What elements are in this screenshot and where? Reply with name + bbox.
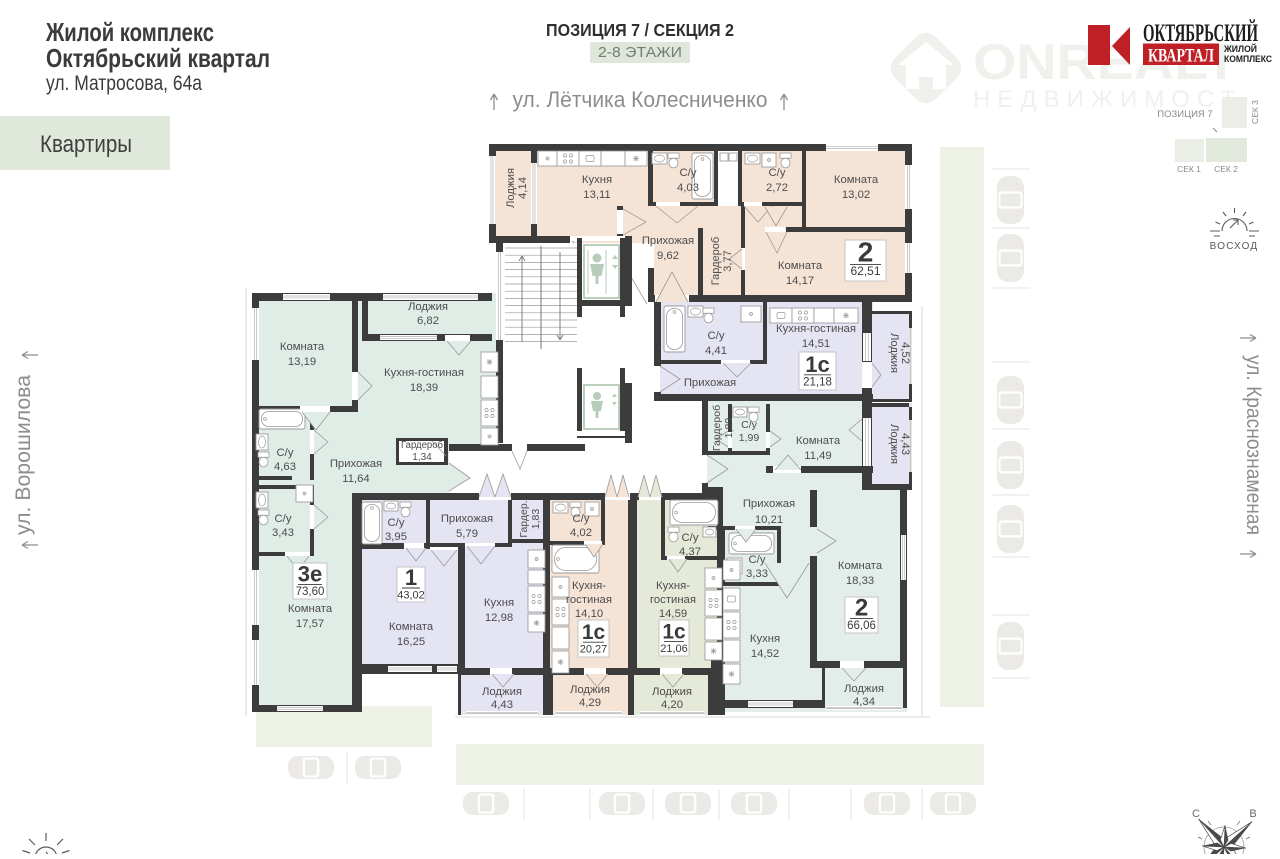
svg-text:ул. Ворошилова: ул. Ворошилова [11, 375, 35, 535]
svg-text:Прихожая: Прихожая [684, 377, 736, 389]
svg-text:Гардероб: Гардероб [401, 439, 443, 451]
svg-text:С/у: С/у [573, 513, 590, 525]
svg-text:3,77: 3,77 [722, 250, 734, 271]
svg-text:2: 2 [858, 236, 874, 267]
svg-text:Кухня-: Кухня- [656, 580, 690, 592]
svg-text:КВАРТАЛ: КВАРТАЛ [1148, 46, 1214, 67]
svg-text:4,29: 4,29 [579, 697, 601, 709]
svg-text:Гардероб: Гардероб [710, 237, 722, 285]
svg-text:С/у: С/у [741, 419, 758, 431]
svg-text:С/у: С/у [275, 513, 292, 525]
svg-text:Комната: Комната [778, 260, 823, 272]
svg-text:5,79: 5,79 [456, 528, 478, 540]
svg-text:43,02: 43,02 [397, 590, 425, 602]
svg-text:1,80: 1,80 [723, 418, 735, 439]
svg-text:4,37: 4,37 [679, 546, 701, 558]
svg-text:ул. Краснознаменая: ул. Краснознаменая [1242, 355, 1266, 535]
svg-text:Октябрьский квартал: Октябрьский квартал [46, 43, 270, 73]
svg-text:4,43: 4,43 [491, 699, 513, 711]
svg-text:3,33: 3,33 [746, 568, 768, 580]
svg-text:СЕК 1: СЕК 1 [1177, 164, 1201, 174]
svg-text:13,19: 13,19 [288, 356, 316, 368]
svg-text:Квартиры: Квартиры [40, 131, 132, 158]
svg-text:Комната: Комната [834, 174, 879, 186]
svg-text:Кухня-гостиная: Кухня-гостиная [776, 323, 856, 335]
svg-text:4,03: 4,03 [677, 182, 699, 194]
svg-text:4,63: 4,63 [274, 461, 296, 473]
svg-text:11,64: 11,64 [342, 473, 369, 485]
svg-text:Лоджия: Лоджия [888, 333, 900, 373]
svg-text:Прихожая: Прихожая [441, 513, 493, 525]
svg-text:Кухня-гостиная: Кухня-гостиная [384, 367, 464, 379]
svg-text:Лоджия: Лоджия [888, 424, 900, 464]
svg-text:14,17: 14,17 [786, 275, 814, 287]
svg-text:14,59: 14,59 [659, 608, 687, 620]
svg-text:ул. Лётчика Колесниченко: ул. Лётчика Колесниченко [513, 87, 768, 112]
svg-text:4,34: 4,34 [853, 696, 875, 708]
svg-text:ПОЗИЦИЯ 7: ПОЗИЦИЯ 7 [1157, 109, 1212, 120]
svg-text:Кухня: Кухня [582, 174, 612, 186]
svg-text:СЕК 3: СЕК 3 [1250, 100, 1260, 124]
svg-text:СЕК 2: СЕК 2 [1214, 164, 1238, 174]
svg-text:Кухня: Кухня [750, 633, 780, 645]
svg-text:73,60: 73,60 [296, 586, 325, 598]
svg-text:3,95: 3,95 [385, 531, 407, 543]
svg-text:3,43: 3,43 [272, 527, 294, 539]
svg-text:Лоджия: Лоджия [570, 684, 610, 696]
svg-text:4,02: 4,02 [570, 527, 592, 539]
svg-text:14,10: 14,10 [575, 608, 603, 620]
svg-text:13,02: 13,02 [842, 189, 870, 201]
svg-text:Лоджия: Лоджия [844, 683, 884, 695]
svg-text:гостиная: гостиная [566, 594, 612, 606]
svg-text:С/у: С/у [680, 167, 697, 179]
svg-text:11,49: 11,49 [804, 450, 831, 462]
svg-text:С/у: С/у [769, 167, 786, 179]
svg-text:С/у: С/у [388, 517, 405, 529]
svg-text:В: В [1249, 808, 1256, 820]
svg-text:ВОСХОД: ВОСХОД [1210, 241, 1259, 252]
svg-text:1,99: 1,99 [739, 432, 760, 444]
svg-text:2: 2 [855, 595, 868, 622]
svg-text:17,57: 17,57 [296, 618, 324, 630]
svg-text:Прихожая: Прихожая [743, 498, 795, 510]
svg-text:Комната: Комната [288, 603, 333, 615]
svg-text:14,52: 14,52 [751, 648, 779, 660]
svg-text:Лоджия: Лоджия [652, 686, 692, 698]
svg-text:9,62: 9,62 [657, 250, 679, 262]
svg-text:ул. Матросова, 64а: ул. Матросова, 64а [46, 72, 202, 95]
svg-text:21,06: 21,06 [660, 643, 688, 655]
svg-text:Прихожая: Прихожая [330, 458, 382, 470]
svg-text:1с: 1с [662, 621, 686, 644]
svg-text:Лоджия: Лоджия [482, 686, 522, 698]
svg-text:Комната: Комната [389, 621, 434, 633]
svg-text:Комната: Комната [280, 341, 325, 353]
svg-text:Лоджия: Лоджия [408, 301, 448, 313]
svg-text:Комната: Комната [838, 560, 883, 572]
svg-text:18,39: 18,39 [410, 382, 438, 394]
svg-text:66,06: 66,06 [847, 620, 876, 632]
svg-text:62,51: 62,51 [850, 264, 880, 278]
svg-text:1с: 1с [805, 352, 829, 377]
svg-text:1с: 1с [582, 621, 606, 644]
svg-text:3е: 3е [298, 562, 322, 587]
svg-text:2-8 ЭТАЖИ: 2-8 ЭТАЖИ [598, 44, 682, 61]
svg-text:13,11: 13,11 [583, 189, 610, 201]
svg-text:10,21: 10,21 [755, 514, 783, 526]
svg-text:С/у: С/у [749, 554, 766, 566]
svg-text:С/у: С/у [708, 330, 725, 342]
svg-text:Кухня: Кухня [484, 597, 514, 609]
svg-text:1,83: 1,83 [530, 509, 542, 530]
svg-text:18,33: 18,33 [846, 575, 874, 587]
svg-text:4,43: 4,43 [899, 433, 911, 455]
svg-text:4,14: 4,14 [517, 177, 529, 199]
svg-text:Гардер.: Гардер. [518, 500, 530, 537]
svg-text:Комната: Комната [796, 435, 841, 447]
svg-text:4,41: 4,41 [705, 345, 727, 357]
svg-text:1,34: 1,34 [412, 452, 432, 463]
svg-text:Лоджия: Лоджия [505, 168, 517, 208]
svg-text:ОКТЯБРЬСКИЙ: ОКТЯБРЬСКИЙ [1143, 19, 1258, 47]
svg-text:ПОЗИЦИЯ 7 / СЕКЦИЯ 2: ПОЗИЦИЯ 7 / СЕКЦИЯ 2 [546, 20, 734, 40]
svg-text:4,20: 4,20 [661, 699, 683, 711]
svg-text:Гардероб: Гардероб [711, 405, 723, 451]
svg-text:КОМПЛЕКС: КОМПЛЕКС [1224, 54, 1272, 65]
svg-text:гостиная: гостиная [650, 594, 696, 606]
svg-text:Кухня-: Кухня- [572, 580, 606, 592]
svg-text:2,72: 2,72 [766, 182, 788, 194]
svg-text:4,52: 4,52 [899, 342, 911, 364]
svg-text:20,27: 20,27 [580, 644, 608, 656]
svg-text:Прихожая: Прихожая [642, 235, 694, 247]
svg-text:6,82: 6,82 [417, 315, 439, 327]
svg-text:14,51: 14,51 [802, 338, 830, 350]
svg-text:С/у: С/у [277, 447, 294, 459]
svg-text:С/у: С/у [682, 532, 699, 544]
svg-text:12,98: 12,98 [485, 612, 513, 624]
svg-text:С: С [1192, 808, 1200, 820]
svg-text:1: 1 [405, 565, 417, 590]
svg-text:21,18: 21,18 [803, 376, 832, 388]
svg-text:16,25: 16,25 [397, 636, 425, 648]
